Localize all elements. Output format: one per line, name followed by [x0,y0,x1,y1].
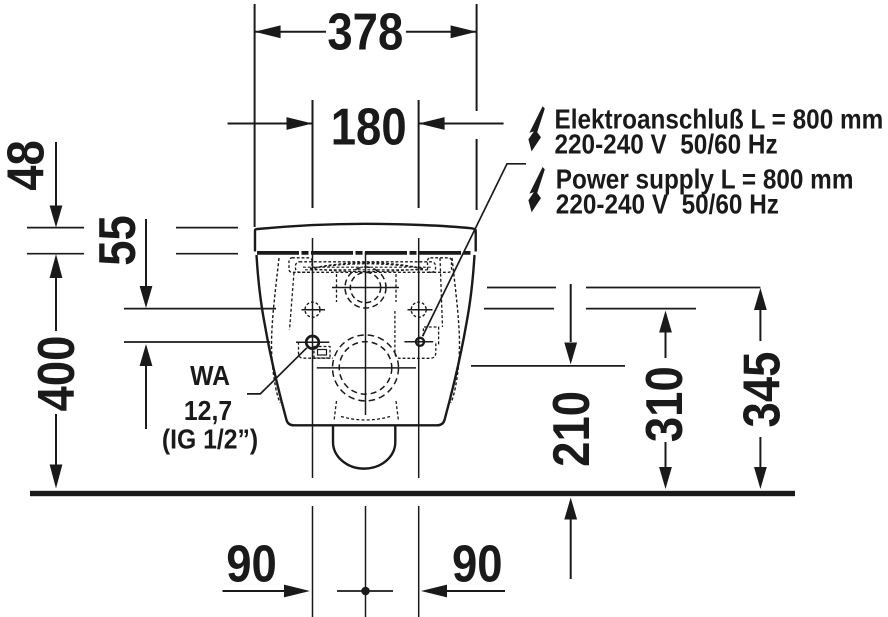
svg-text:90: 90 [226,536,277,593]
svg-text:180: 180 [331,99,407,156]
svg-text:210: 210 [543,391,600,467]
svg-text:345: 345 [734,352,791,428]
svg-text:220-240 V 50/60 Hz: 220-240 V 50/60 Hz [555,128,778,160]
svg-text:378: 378 [327,4,403,61]
svg-text:55: 55 [89,215,146,266]
svg-text:400: 400 [28,336,85,412]
svg-text:12,7: 12,7 [184,395,232,427]
svg-text:90: 90 [452,536,503,593]
svg-text:310: 310 [636,366,693,442]
svg-text:WA: WA [190,360,230,392]
svg-text:(IG 1/2”): (IG 1/2”) [162,423,258,455]
svg-text:220-240 V 50/60 Hz: 220-240 V 50/60 Hz [556,188,779,220]
svg-text:48: 48 [0,140,55,191]
